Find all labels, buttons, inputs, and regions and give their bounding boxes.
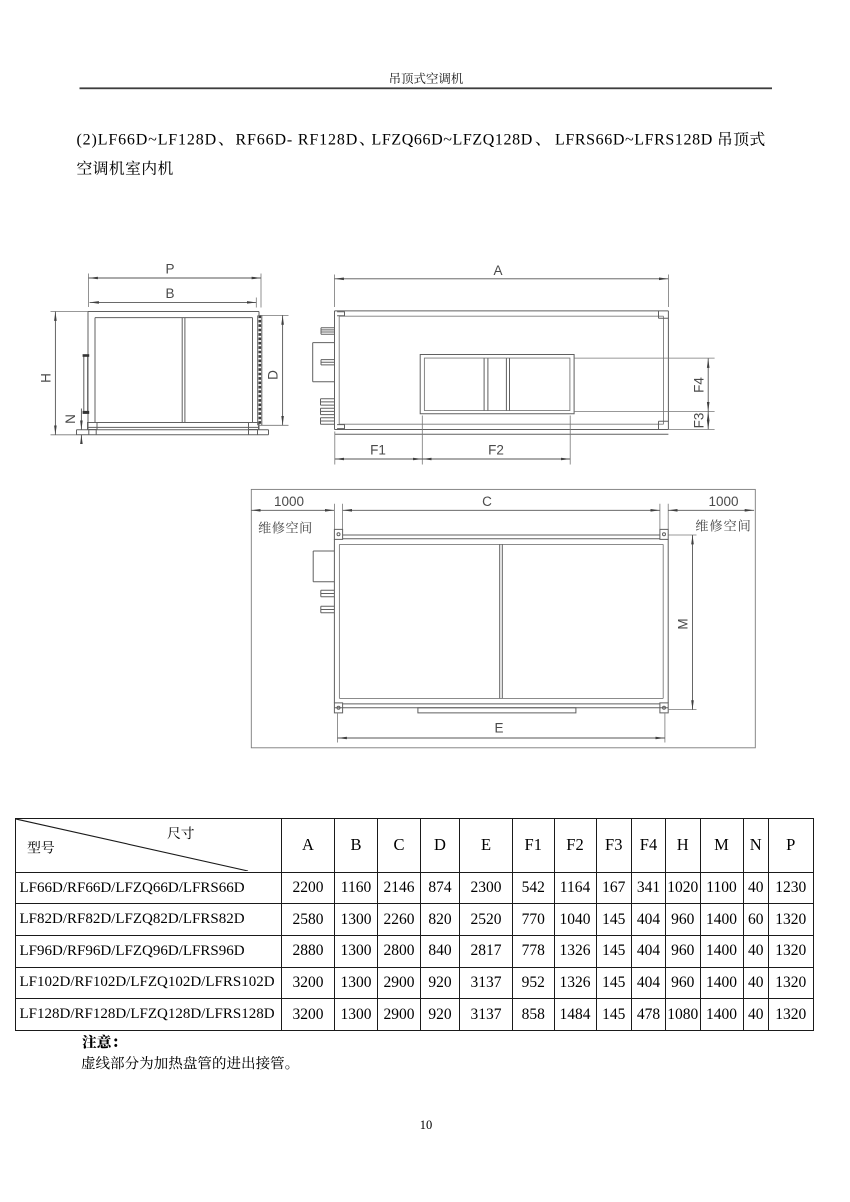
svg-text:C: C: [482, 494, 492, 509]
svg-text:D: D: [266, 370, 281, 380]
svg-text:B: B: [165, 286, 174, 301]
svg-text:F4: F4: [692, 377, 707, 393]
svg-text:F3: F3: [692, 413, 707, 429]
svg-text:M: M: [676, 618, 691, 629]
svg-text:LFRS66D~LFRS128D: LFRS66D~LFRS128D: [555, 131, 713, 148]
svg-text:A: A: [493, 263, 502, 278]
svg-text:P: P: [165, 262, 174, 277]
svg-text:1000: 1000: [708, 494, 738, 509]
svg-text:F2: F2: [488, 442, 504, 457]
svg-text:LFZQ66D~LFZQ128D: LFZQ66D~LFZQ128D: [372, 131, 533, 148]
svg-text:(2)LF66D~LF128D: (2)LF66D~LF128D: [77, 131, 218, 148]
svg-text:RF66D- RF128D: RF66D- RF128D: [236, 131, 359, 148]
svg-text:F1: F1: [370, 442, 386, 457]
svg-text:E: E: [494, 721, 503, 736]
svg-text:1000: 1000: [274, 494, 304, 509]
svg-text:H: H: [39, 373, 54, 383]
svg-text:N: N: [63, 414, 78, 424]
